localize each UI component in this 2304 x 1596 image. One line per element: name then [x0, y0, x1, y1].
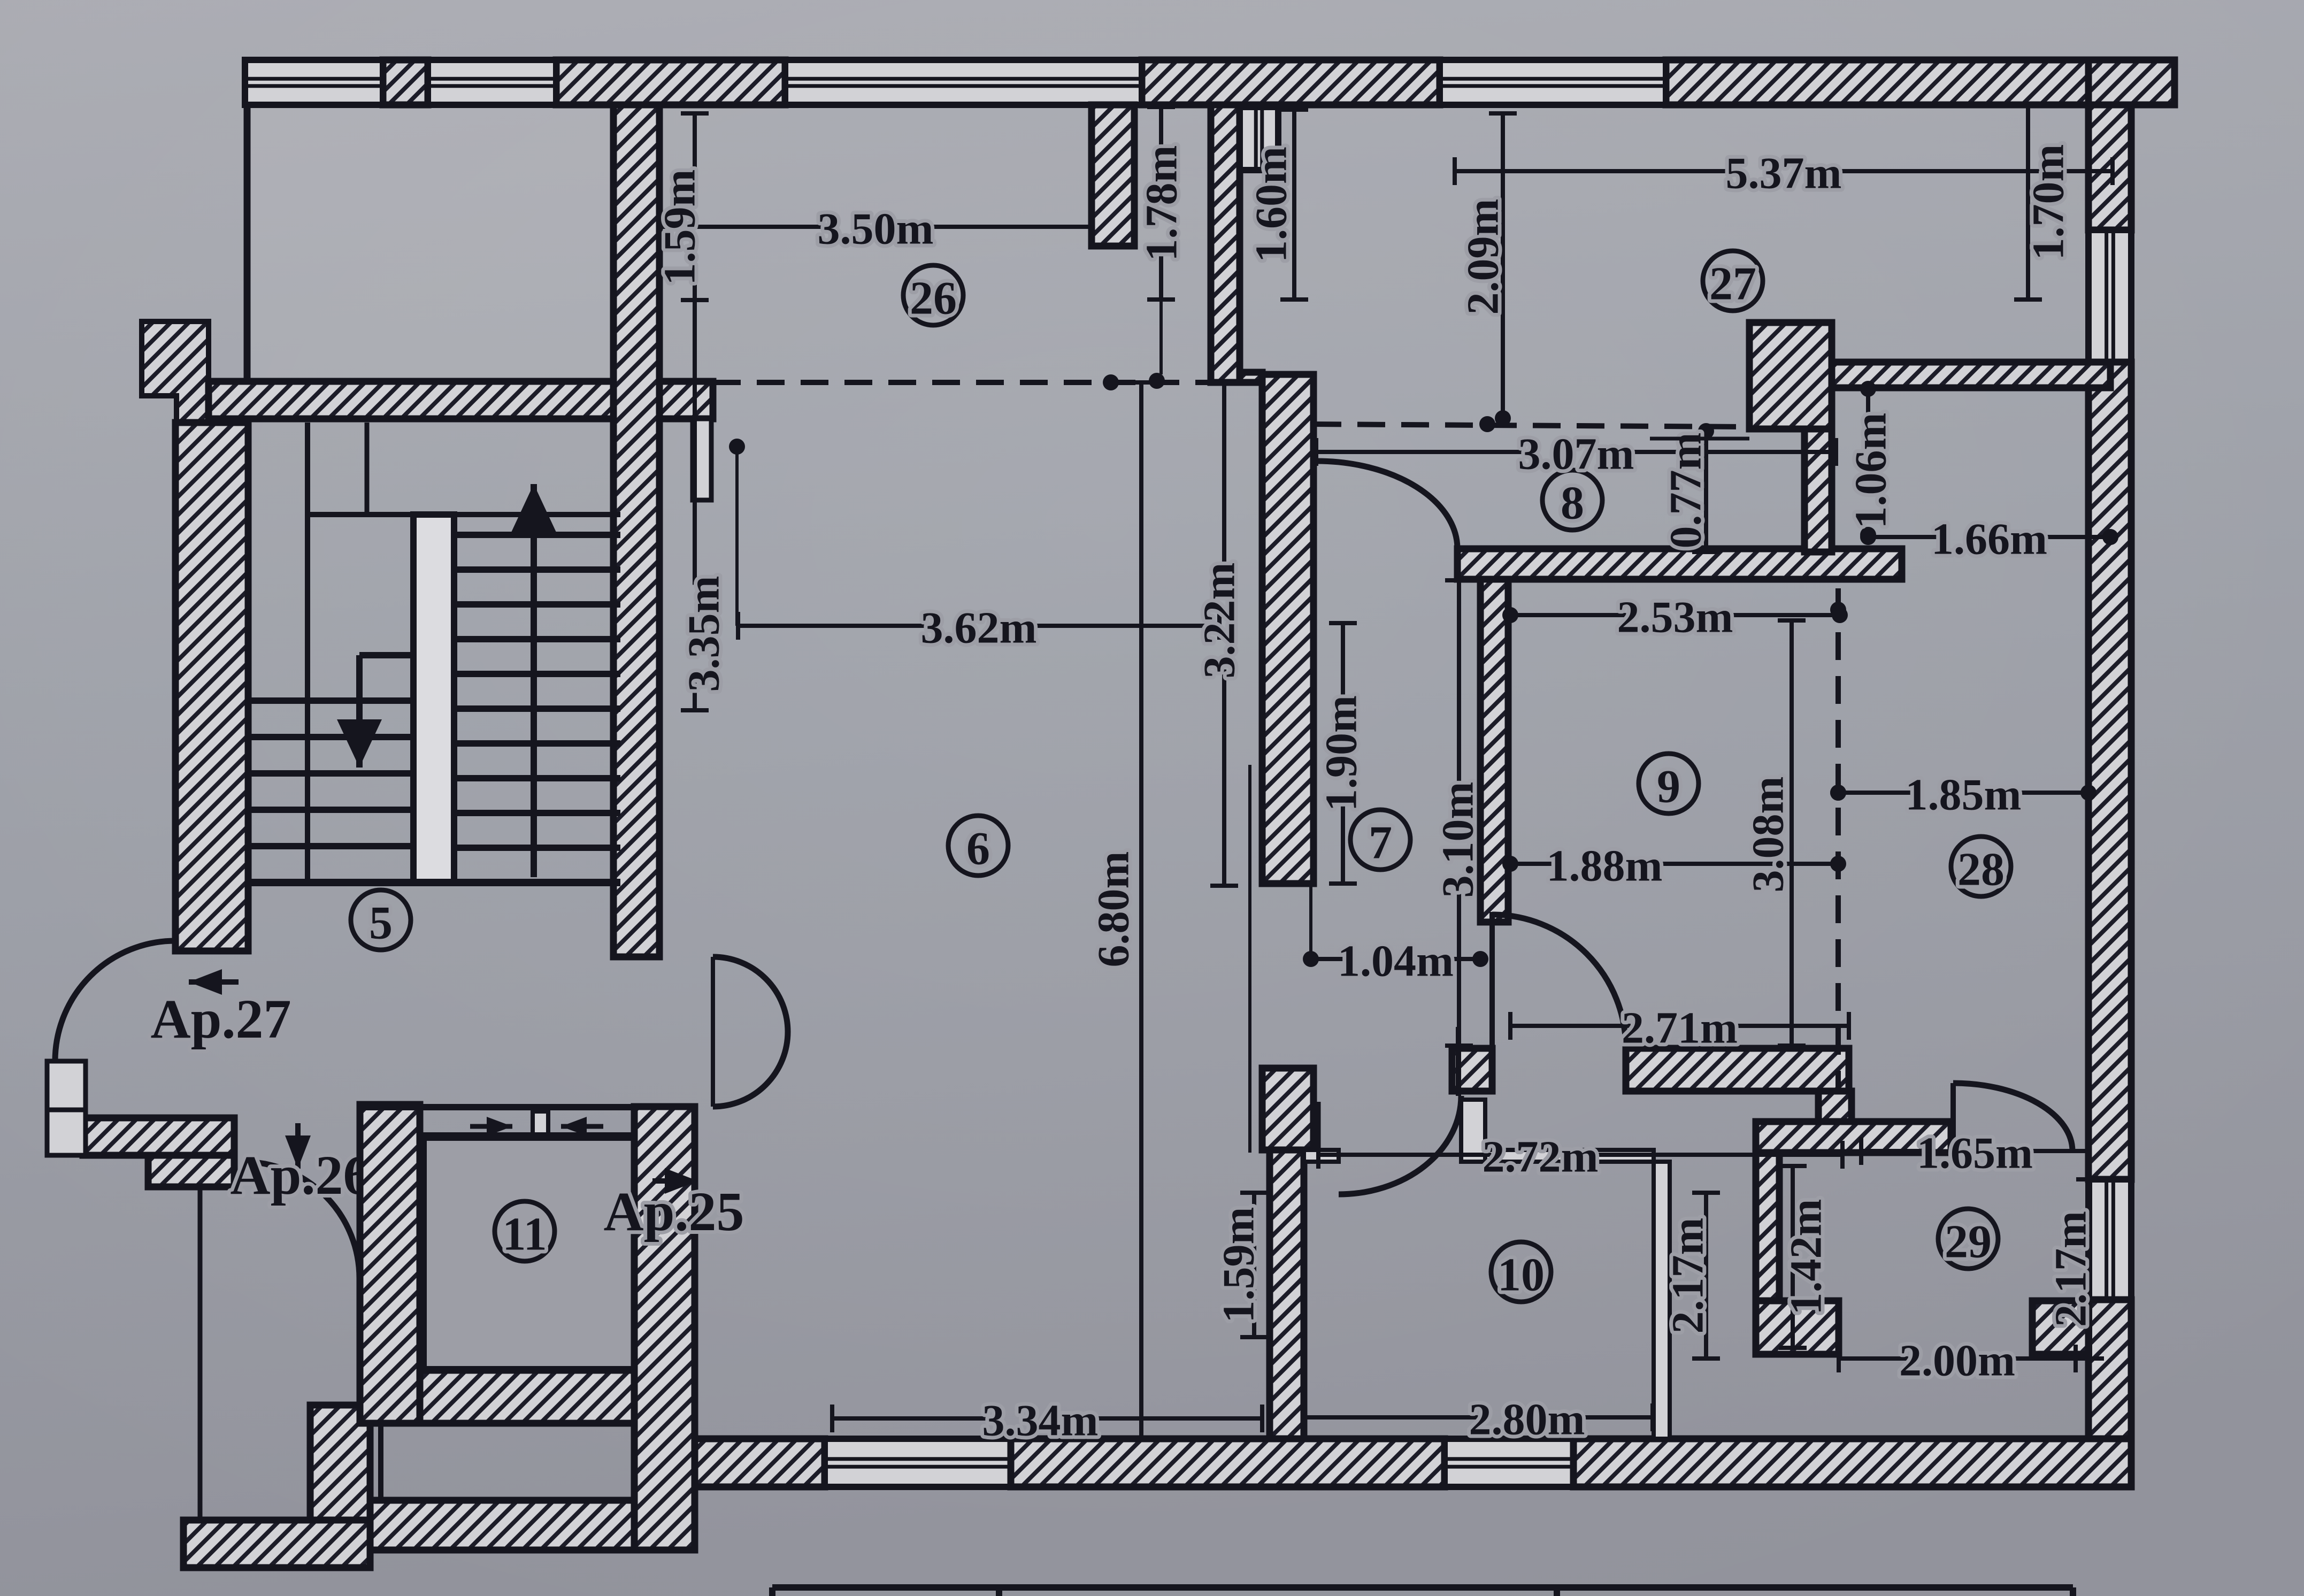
svg-text:1.66m: 1.66m — [1931, 515, 2047, 564]
svg-text:3.35m: 3.35m — [679, 576, 729, 692]
svg-text:1.65m: 1.65m — [1917, 1129, 2033, 1178]
svg-text:2.17m: 2.17m — [2046, 1211, 2096, 1327]
svg-text:2.53m: 2.53m — [1617, 593, 1733, 642]
svg-text:3.34m: 3.34m — [982, 1396, 1099, 1446]
svg-text:29: 29 — [1945, 1216, 1992, 1268]
svg-text:6: 6 — [966, 823, 990, 875]
svg-text:7: 7 — [1369, 817, 1392, 869]
svg-text:3.62m: 3.62m — [921, 603, 1037, 653]
svg-text:3.08m: 3.08m — [1744, 777, 1793, 893]
svg-text:3.10m: 3.10m — [1433, 782, 1483, 898]
svg-text:0.77m: 0.77m — [1661, 433, 1711, 549]
svg-text:1.78m: 1.78m — [1137, 145, 1187, 262]
svg-text:Ap.25: Ap.25 — [604, 1181, 744, 1242]
svg-text:1.90m: 1.90m — [1317, 695, 1366, 811]
svg-text:5: 5 — [369, 897, 393, 949]
svg-text:8: 8 — [1561, 478, 1584, 530]
svg-text:2.09m: 2.09m — [1458, 199, 1508, 315]
svg-text:3.07m: 3.07m — [1518, 429, 1634, 479]
svg-text:9: 9 — [1657, 761, 1680, 813]
svg-text:11: 11 — [502, 1209, 547, 1261]
svg-text:2.17m: 2.17m — [1663, 1218, 1713, 1334]
svg-text:26: 26 — [910, 273, 957, 325]
svg-text:1.85m: 1.85m — [1906, 770, 2022, 820]
svg-text:1.60m: 1.60m — [1247, 147, 1296, 263]
svg-text:3.22m: 3.22m — [1195, 563, 1245, 679]
svg-text:1.59m: 1.59m — [655, 170, 705, 286]
svg-text:1.04m: 1.04m — [1338, 937, 1454, 986]
svg-text:1.70m: 1.70m — [2024, 144, 2073, 260]
svg-text:2.00m: 2.00m — [1899, 1336, 2015, 1386]
svg-text:1.88m: 1.88m — [1547, 841, 1663, 891]
svg-text:28: 28 — [1957, 844, 2005, 896]
svg-text:2.72m: 2.72m — [1483, 1132, 1599, 1182]
svg-text:27: 27 — [1709, 258, 1756, 310]
svg-text:6.80m: 6.80m — [1089, 851, 1139, 968]
svg-text:10: 10 — [1497, 1249, 1545, 1301]
svg-text:2.80m: 2.80m — [1469, 1395, 1585, 1445]
svg-text:1.06m: 1.06m — [1846, 413, 1896, 529]
svg-text:2.71m: 2.71m — [1622, 1003, 1738, 1053]
svg-text:1.42m: 1.42m — [1781, 1199, 1831, 1315]
svg-text:3.50m: 3.50m — [818, 204, 934, 254]
svg-text:Ap.27: Ap.27 — [151, 988, 291, 1050]
svg-text:1.59m: 1.59m — [1214, 1207, 1264, 1323]
svg-text:5.37m: 5.37m — [1726, 149, 1842, 198]
svg-text:Ap.26: Ap.26 — [231, 1145, 371, 1206]
